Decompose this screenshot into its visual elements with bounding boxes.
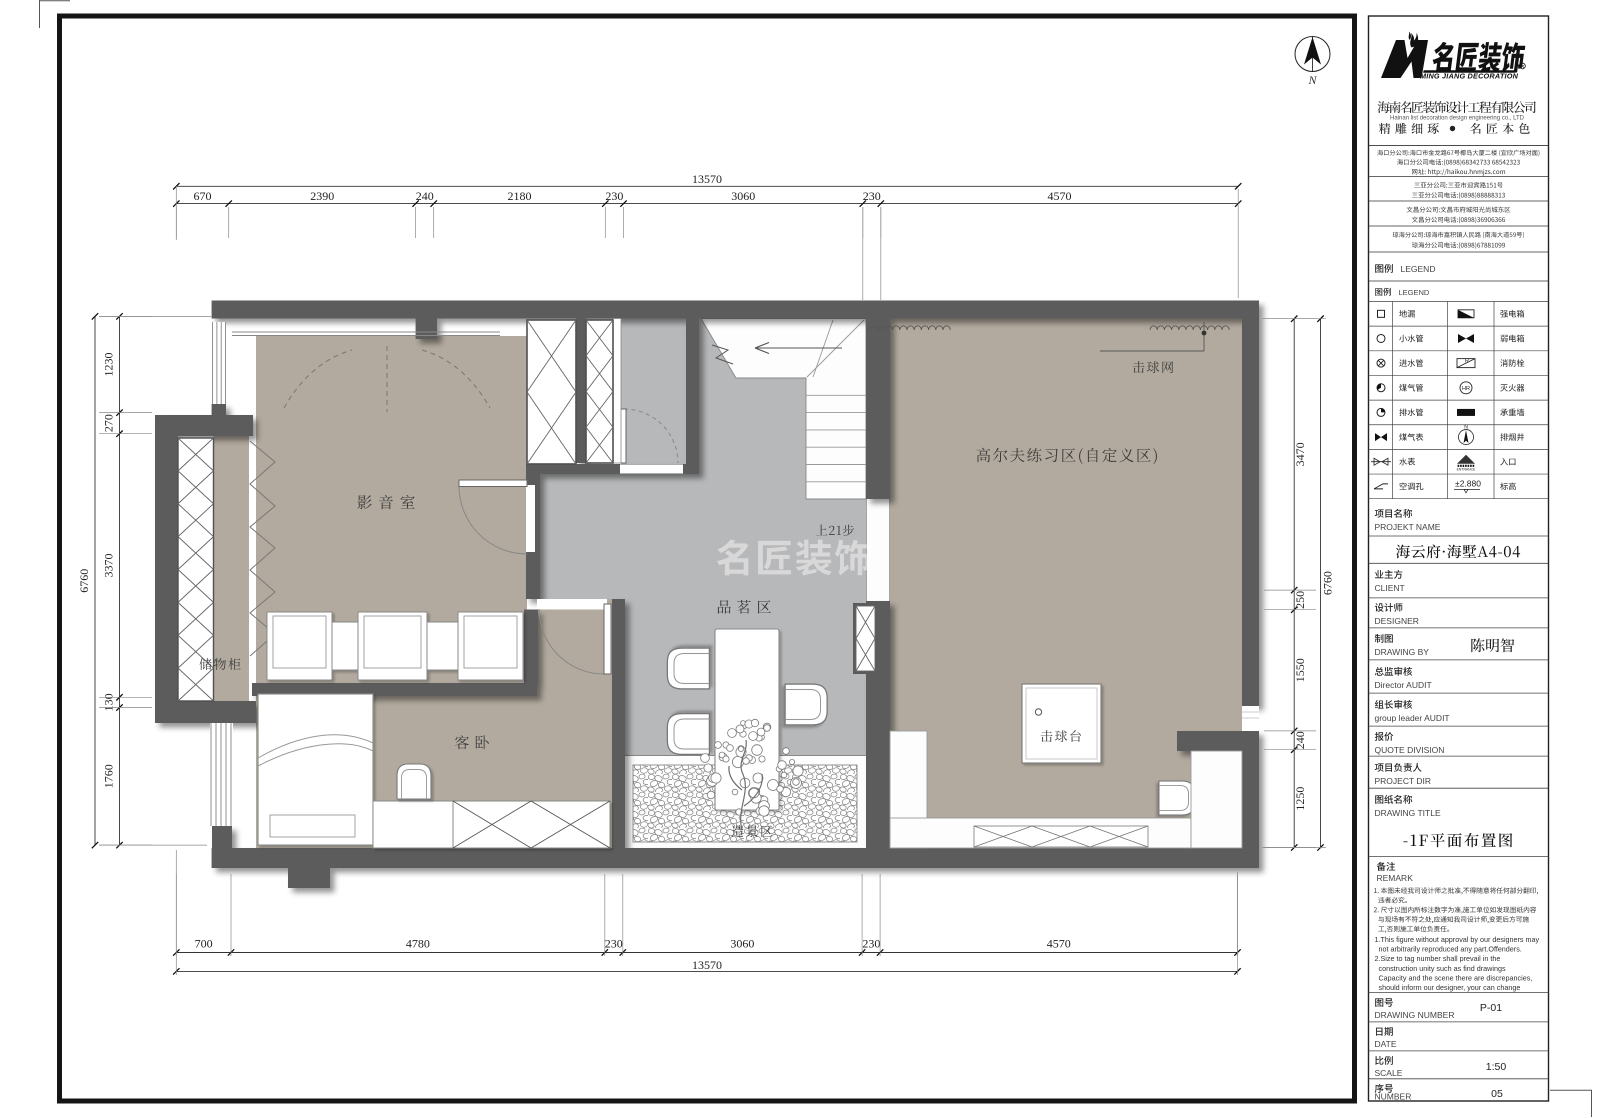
svg-text:3370: 3370	[102, 554, 116, 578]
svg-text:HR: HR	[1462, 386, 1470, 392]
svg-text:130: 130	[102, 693, 116, 711]
svg-text:3470: 3470	[1293, 442, 1307, 466]
svg-text:1:50: 1:50	[1486, 1061, 1507, 1073]
svg-text:230: 230	[605, 189, 623, 203]
svg-text:Capacity and the scene there a: Capacity and the scene there are discrep…	[1375, 973, 1533, 982]
svg-text:4570: 4570	[1048, 189, 1072, 203]
svg-text:6760: 6760	[1321, 571, 1335, 595]
svg-text:230: 230	[862, 937, 880, 951]
svg-text:ENTRANCE: ENTRANCE	[1457, 468, 1476, 472]
svg-text:Hainan list decoration design: Hainan list decoration design engineerin…	[1390, 116, 1525, 122]
svg-text:4570: 4570	[1047, 937, 1071, 951]
svg-text:LEGEND: LEGEND	[1401, 264, 1436, 274]
svg-text:240: 240	[416, 189, 434, 203]
svg-text:1760: 1760	[102, 764, 116, 788]
svg-text:270: 270	[102, 414, 116, 432]
svg-text:1.This figure without approval: 1.This figure without approval by our de…	[1375, 935, 1540, 944]
svg-text:2.Size to tag number shall pre: 2.Size to tag number shall prevail in th…	[1375, 954, 1501, 963]
svg-text:QUOTE DIVISION: QUOTE DIVISION	[1375, 745, 1445, 755]
svg-text:13570: 13570	[692, 172, 722, 186]
svg-text:13570: 13570	[692, 958, 722, 972]
svg-text:1550: 1550	[1293, 658, 1307, 682]
svg-text:6760: 6760	[77, 569, 91, 593]
svg-text:230: 230	[605, 937, 623, 951]
svg-text:3060: 3060	[730, 937, 754, 951]
svg-text:05: 05	[1491, 1088, 1503, 1100]
svg-text:250: 250	[1293, 591, 1307, 609]
svg-text:230: 230	[863, 189, 881, 203]
svg-text:Director AUDIT: Director AUDIT	[1375, 680, 1432, 690]
svg-text:DESIGNER: DESIGNER	[1375, 616, 1419, 626]
svg-text:construction unity such as fin: construction unity such as find drawings	[1375, 964, 1506, 973]
svg-text:CLIENT: CLIENT	[1375, 583, 1405, 593]
svg-text:DRAWING BY: DRAWING BY	[1375, 647, 1430, 657]
svg-text:2180: 2180	[508, 189, 532, 203]
svg-text:670: 670	[194, 189, 212, 203]
svg-text:REMARK: REMARK	[1377, 873, 1414, 883]
svg-text:1230: 1230	[102, 353, 116, 377]
svg-text:4780: 4780	[406, 937, 430, 951]
svg-text:3060: 3060	[731, 189, 755, 203]
svg-text:2390: 2390	[310, 189, 334, 203]
svg-text:PROJEKT NAME: PROJEKT NAME	[1375, 522, 1441, 532]
svg-text:SCALE: SCALE	[1375, 1068, 1403, 1078]
svg-text:1250: 1250	[1293, 787, 1307, 811]
svg-text:should inform our designer, yo: should inform our designer, your can cha…	[1375, 983, 1521, 992]
svg-text:not arbitrarily reproduced any: not arbitrarily reproduced any part.Offe…	[1375, 945, 1522, 954]
svg-text:±2.880: ±2.880	[1455, 478, 1481, 488]
svg-text:700: 700	[195, 937, 213, 951]
svg-text:R: R	[1465, 359, 1469, 365]
svg-text:DATE: DATE	[1375, 1039, 1397, 1049]
svg-text:N: N	[1464, 425, 1468, 431]
svg-text:PROJECT DIR: PROJECT DIR	[1375, 776, 1432, 786]
svg-text:N: N	[1307, 73, 1317, 87]
svg-text:240: 240	[1293, 731, 1307, 749]
svg-text:group leader AUDIT: group leader AUDIT	[1375, 713, 1450, 723]
svg-text:DRAWING NUMBER: DRAWING NUMBER	[1375, 1010, 1455, 1020]
svg-text:MING JIANG DECORATION: MING JIANG DECORATION	[1420, 72, 1519, 81]
svg-text:LEGEND: LEGEND	[1399, 288, 1430, 297]
svg-text:P-01: P-01	[1480, 1002, 1502, 1014]
svg-text:NUMBER: NUMBER	[1375, 1092, 1412, 1102]
svg-text:DRAWING TITLE: DRAWING TITLE	[1375, 808, 1441, 818]
svg-text:R: R	[1521, 64, 1524, 69]
